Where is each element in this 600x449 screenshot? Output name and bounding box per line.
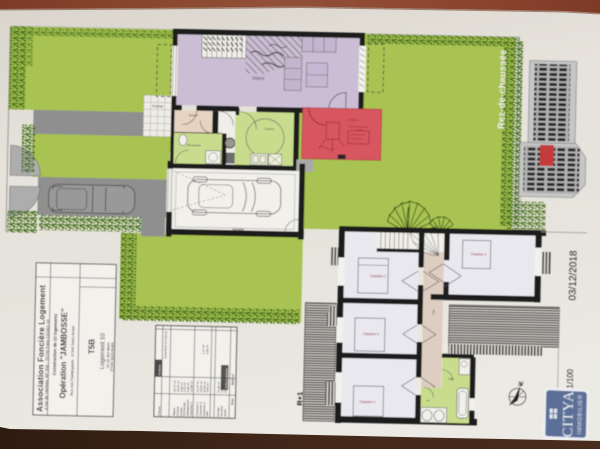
svg-text:R+1: R+1: [295, 392, 304, 406]
svg-text:Jardin: Jardin: [223, 409, 227, 417]
svg-text:Total: Total: [230, 398, 234, 405]
svg-text:T5B: T5B: [87, 339, 96, 355]
svg-text:WC/lavabo: WC/lavabo: [187, 143, 201, 147]
svg-text:Chambre 2: Chambre 2: [471, 252, 487, 256]
svg-text:Porche: Porche: [152, 104, 163, 108]
svg-text:1/100: 1/100: [566, 368, 575, 388]
svg-text:Superficie loi Carrez: Superficie loi Carrez: [163, 330, 168, 358]
svg-text:Surfaces: Surfaces: [157, 364, 161, 376]
svg-text:xx xxxxx: xx xxxxx: [347, 118, 358, 122]
svg-text:Chambre 3: Chambre 3: [363, 332, 379, 336]
svg-text:4,50 m²: 4,50 m²: [205, 345, 209, 355]
svg-text:12,08 m²: 12,08 m²: [189, 381, 193, 393]
svg-text:Pièces: Pièces: [157, 406, 161, 416]
svg-text:97440 Saint-André: 97440 Saint-André: [110, 342, 115, 371]
svg-text:Séjour: Séjour: [252, 76, 265, 81]
svg-text:Garage: Garage: [232, 227, 244, 231]
svg-text:Chambre 4: Chambre 4: [359, 400, 375, 404]
svg-text:99,83 m²: 99,83 m²: [231, 374, 235, 386]
svg-text:4,94 m²: 4,94 m²: [206, 383, 210, 393]
svg-text:Surfaces annexes: Surfaces annexes: [224, 368, 228, 390]
svg-text:Chambre 1: Chambre 1: [189, 402, 193, 417]
svg-text:Rez-de-chaussée: Rez-de-chaussée: [496, 49, 508, 129]
svg-text:xxx xx: xxx xx: [356, 129, 364, 132]
svg-text:IMMOBILIER: IMMOBILIER: [577, 394, 584, 434]
svg-text:Sdb: Sdb: [205, 411, 209, 417]
svg-text:03/12/2018: 03/12/2018: [568, 250, 580, 301]
svg-text:Dgt: Dgt: [431, 310, 435, 315]
svg-text:Chambre 1: Chambre 1: [370, 274, 386, 278]
svg-text:Cuisine: Cuisine: [264, 127, 274, 131]
svg-text:N: N: [518, 381, 523, 388]
svg-text:CITYA: CITYA: [560, 390, 577, 437]
svg-text:Entrée: Entrée: [189, 113, 198, 117]
